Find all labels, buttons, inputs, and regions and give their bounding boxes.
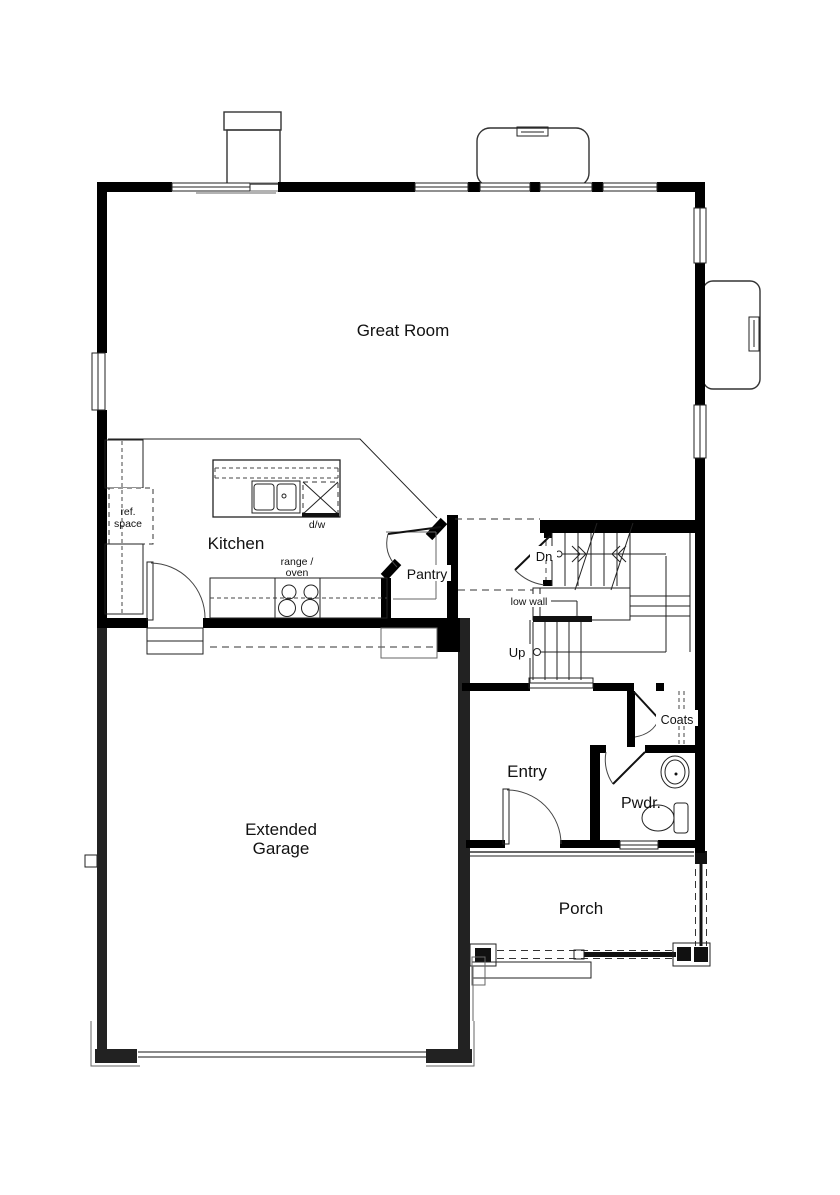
- stairs-up-flight: [529, 620, 593, 688]
- coats-door: [634, 692, 659, 719]
- front-door: [503, 789, 561, 844]
- garage-door: [138, 1052, 426, 1057]
- ref-space-label-line1: ref.: [120, 506, 135, 518]
- window: [694, 405, 706, 458]
- step: [147, 641, 203, 654]
- porch-label: Porch: [559, 899, 603, 918]
- porch-step: [472, 962, 591, 978]
- utility-pad: [381, 628, 437, 658]
- window: [415, 183, 468, 191]
- dishwasher-label: d/w: [309, 519, 326, 531]
- stairs-down-flight: [552, 523, 633, 620]
- porch-beam: [584, 952, 676, 957]
- floor-plan: Great Room Kitchen Pantry Extended Garag…: [0, 0, 840, 1195]
- cabinet: [105, 544, 143, 614]
- window: [92, 353, 105, 410]
- garage-label-line1: Extended: [245, 820, 317, 839]
- range-oven-label-line2: oven: [286, 567, 309, 579]
- staircase: [455, 519, 690, 688]
- chimney: [224, 112, 281, 184]
- great-room-label: Great Room: [357, 321, 450, 340]
- counter: [210, 578, 387, 618]
- foundation-outline: [85, 855, 485, 1066]
- window: [172, 183, 250, 191]
- garage-entry-door: [147, 562, 205, 654]
- entry-label: Entry: [507, 762, 547, 781]
- garage-left-wall: [97, 620, 107, 1062]
- window: [694, 208, 706, 263]
- ref-space-label-line2: space: [114, 518, 142, 530]
- window: [540, 183, 592, 191]
- fireplace: [703, 281, 760, 389]
- powder-door: [613, 752, 645, 784]
- low-wall-label: low wall: [511, 596, 548, 608]
- kitchen-label: Kitchen: [208, 534, 265, 553]
- annotation-labels: ref. space range / oven d/w Dn Up low wa…: [114, 506, 552, 660]
- stairs-up-label: Up: [509, 645, 526, 660]
- porch-post: [475, 948, 491, 962]
- garage-label-line2: Garage: [253, 839, 310, 858]
- cabinet: [105, 440, 143, 488]
- stairs-down-label: Dn: [536, 549, 553, 564]
- low-wall: [533, 616, 592, 622]
- bathroom-sink: [661, 756, 689, 788]
- windows: [92, 183, 706, 849]
- bay-window: [477, 127, 589, 186]
- powder-room: [605, 752, 689, 833]
- coats-label: Coats: [661, 713, 694, 727]
- porch-post: [694, 947, 708, 962]
- garage-area: [210, 628, 437, 658]
- interior-walls: [97, 515, 697, 848]
- porch-post: [677, 947, 691, 961]
- pantry-label: Pantry: [407, 566, 447, 582]
- window: [603, 183, 657, 191]
- window: [620, 841, 658, 849]
- window: [480, 183, 530, 191]
- powder-label: Pwdr.: [621, 795, 661, 812]
- step: [147, 628, 203, 641]
